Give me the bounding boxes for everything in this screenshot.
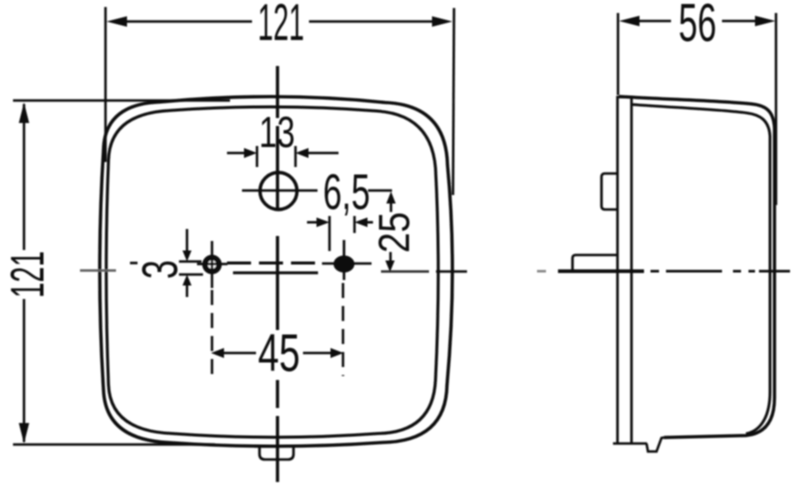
svg-text:121: 121 [1,251,54,298]
svg-text:45: 45 [258,324,300,383]
svg-text:13: 13 [259,108,295,157]
svg-text:121: 121 [258,0,305,52]
svg-text:3: 3 [132,260,188,279]
svg-text:25: 25 [370,212,419,253]
svg-text:56: 56 [679,0,717,53]
svg-text:6,5: 6,5 [323,164,370,220]
